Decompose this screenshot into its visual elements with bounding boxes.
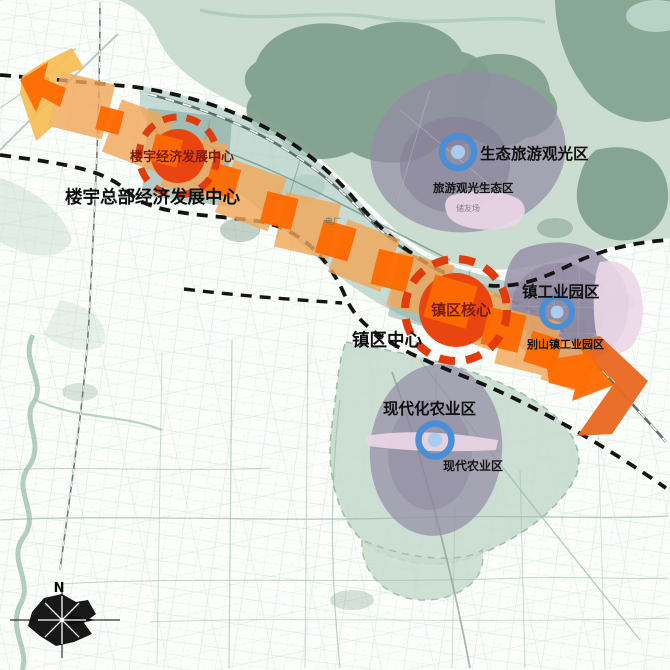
town-marker-label: 镇区核心 [431,301,491,319]
tourism-zone-label: 生态旅游观光区 [480,144,589,163]
power-plant-label: 电厂 [325,216,341,226]
hq-marker-label: 楼宇经济发展中心 [130,149,234,165]
compass-north-label: N [54,581,65,596]
town-axis-label: 镇区中心 [352,330,422,351]
agriculture-zone-label: 现代化农业区 [383,399,477,418]
planning-map: 楼宇经济发展中心 镇区核心 楼宇总部经济发展中心 镇区中心 生态旅游观光区 旅游… [0,0,670,670]
agriculture-zone-sublabel: 现代农业区 [443,458,503,473]
site-label: 储友场 [456,203,480,213]
hq-axis-label: 楼宇总部经济发展中心 [65,187,240,208]
planning-map-canvas: 楼宇经济发展中心 镇区核心 楼宇总部经济发展中心 镇区中心 生态旅游观光区 旅游… [0,0,670,670]
industry-zone-label: 镇工业园区 [522,282,600,301]
industry-zone-sublabel: 别山镇工业园区 [526,337,604,351]
tourism-zone-sublabel: 旅游观光生态区 [433,181,514,195]
